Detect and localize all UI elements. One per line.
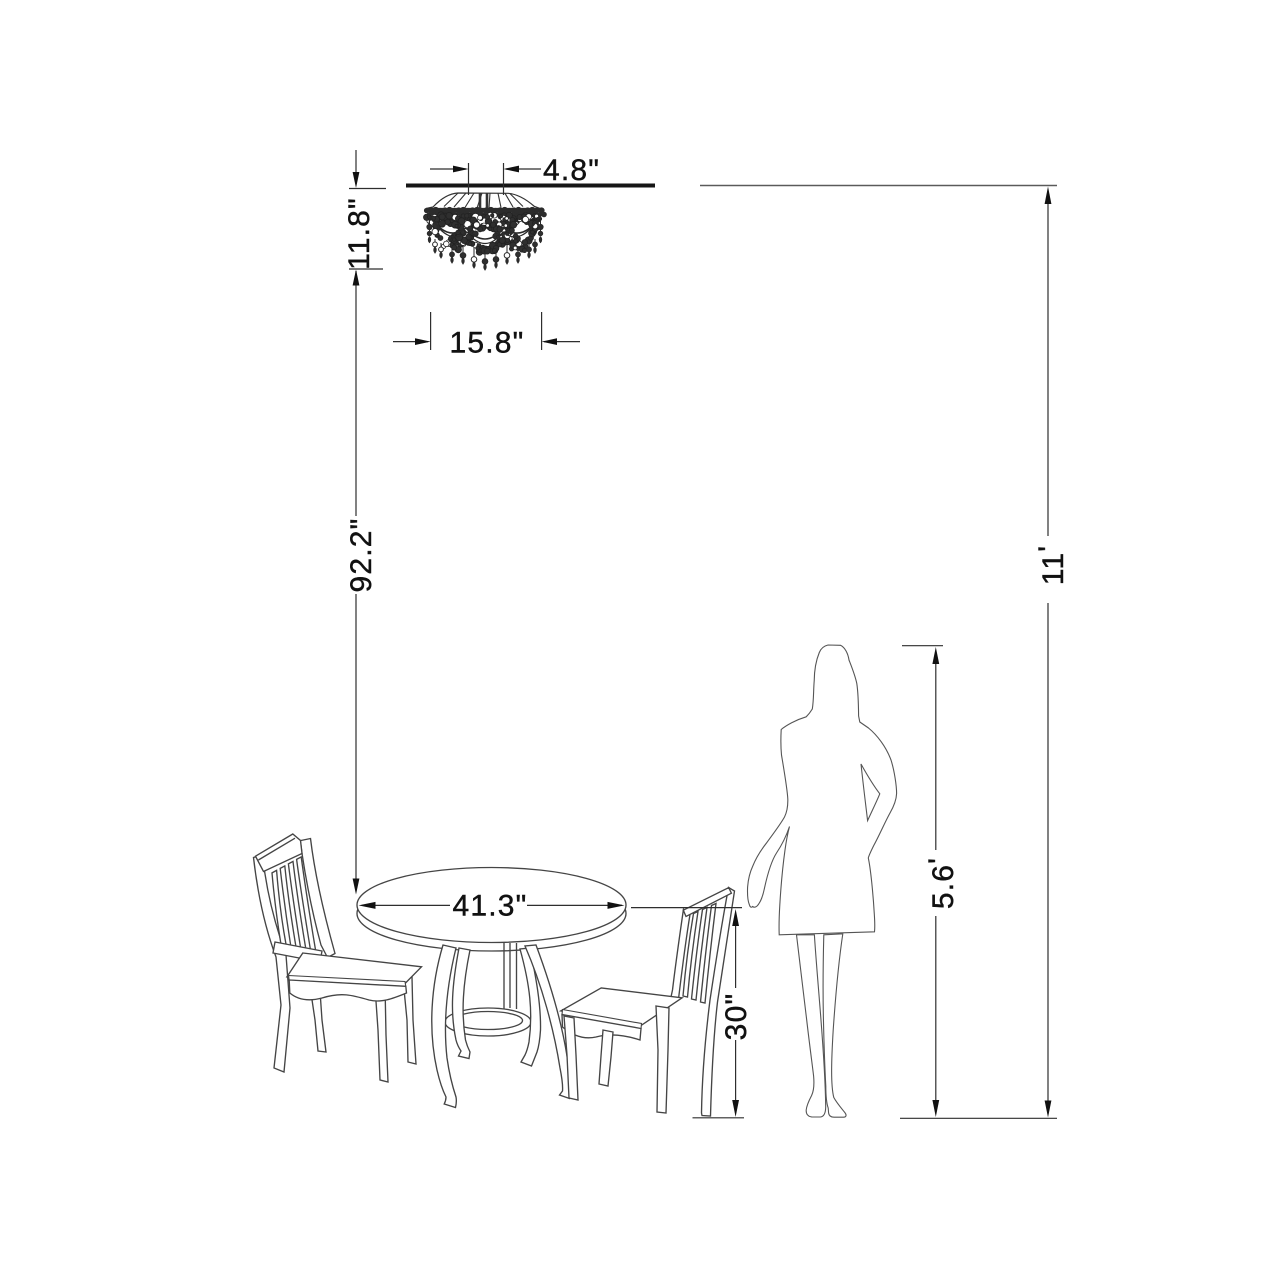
svg-text:5.6': 5.6' <box>923 857 960 909</box>
svg-text:4.8": 4.8" <box>543 154 600 187</box>
svg-text:30": 30" <box>720 993 753 1041</box>
svg-text:11': 11' <box>1033 545 1070 585</box>
svg-text:15.8": 15.8" <box>449 327 524 360</box>
svg-text:11.8": 11.8" <box>343 197 376 270</box>
svg-text:92.2": 92.2" <box>345 517 378 592</box>
svg-text:41.3": 41.3" <box>452 890 527 923</box>
